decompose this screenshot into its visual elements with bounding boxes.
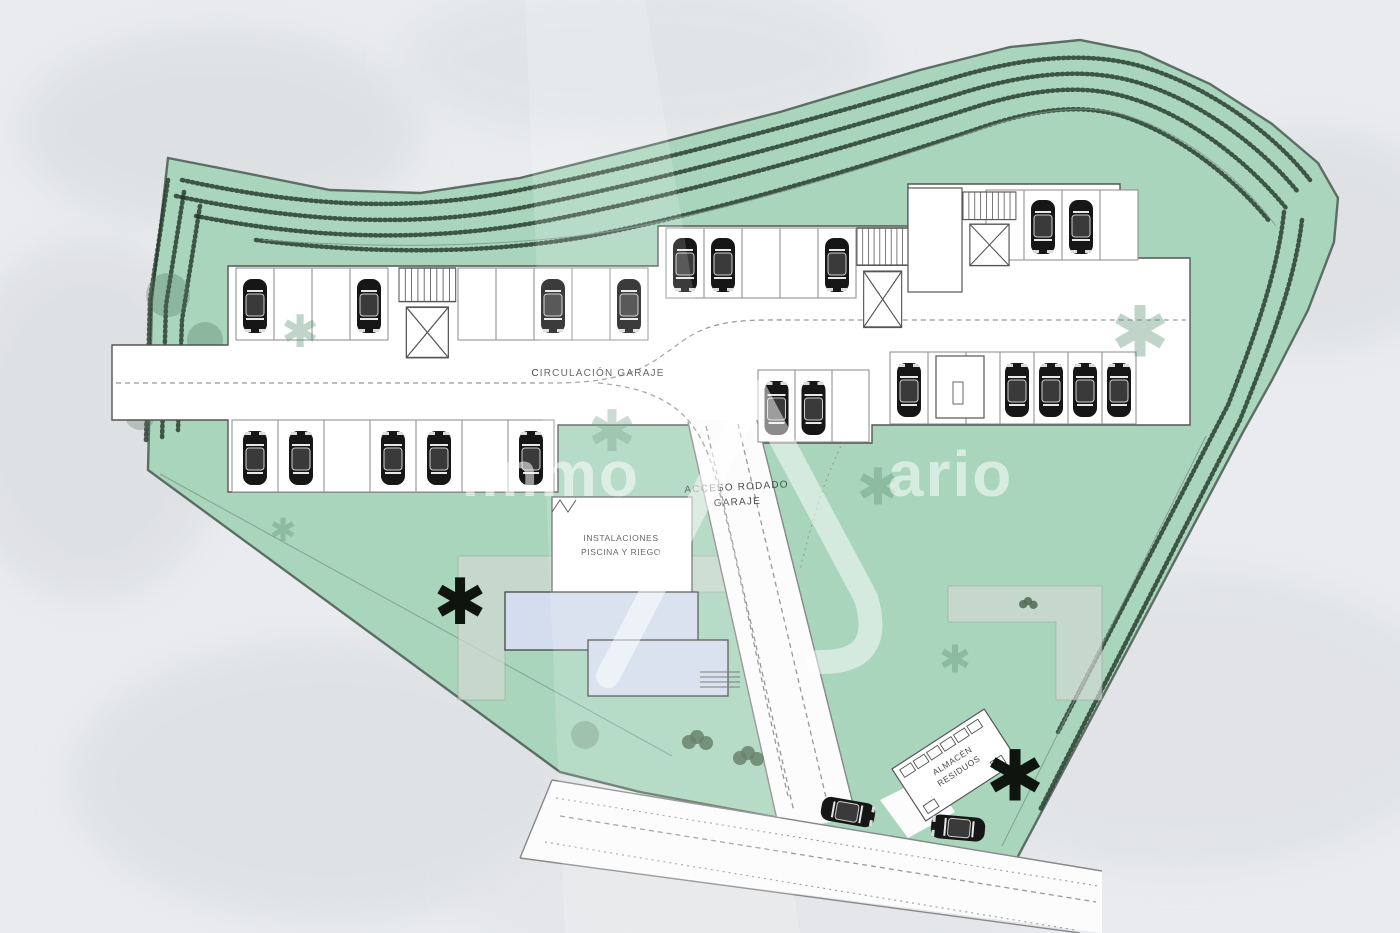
- car-icon: [289, 431, 313, 485]
- parking-bay: [742, 228, 780, 298]
- palm-tree-icon: ✱: [281, 307, 319, 357]
- car-icon: [930, 814, 986, 843]
- parking-bay: [496, 268, 534, 340]
- car-icon: [357, 279, 381, 333]
- car-icon: [1073, 363, 1097, 417]
- palm-tree-icon: ✱: [1111, 293, 1170, 372]
- car-icon: [1031, 200, 1055, 254]
- palm-tree-icon: ✱: [939, 639, 971, 682]
- car-icon: [1069, 200, 1093, 254]
- car-icon: [711, 238, 735, 292]
- stair-core-left: [399, 268, 456, 358]
- parking-bay: [324, 420, 370, 492]
- parking-bay: [832, 370, 869, 442]
- car-icon: [1039, 363, 1063, 417]
- car-icon: [825, 238, 849, 292]
- car-icon: [243, 279, 267, 333]
- car-icon: [427, 431, 451, 485]
- stair-core-middle: [857, 228, 908, 327]
- car-icon: [1005, 363, 1029, 417]
- stair-core-right: [963, 192, 1016, 266]
- parking-bay: [780, 228, 818, 298]
- utility-room-right: [908, 188, 962, 292]
- utility-room-mid: [936, 356, 984, 418]
- watermark-text-right: ario: [888, 438, 1013, 510]
- palm-tree-icon: ✱: [433, 566, 487, 638]
- site-plan-canvas: INSTALACIONES PISCINA Y RIEGO ALMACÉN RE…: [0, 0, 1400, 933]
- car-icon: [897, 363, 921, 417]
- car-icon: [243, 431, 267, 485]
- watermark-text-left: immo: [461, 438, 640, 510]
- parking-bay: [458, 268, 496, 340]
- palm-tree-icon: ✱: [986, 737, 1045, 816]
- car-icon: [381, 431, 405, 485]
- car-icon: [802, 381, 826, 435]
- palm-tree-icon: ✱: [270, 512, 297, 548]
- parking-bay: [1100, 190, 1138, 260]
- bush-icon: [1029, 601, 1037, 609]
